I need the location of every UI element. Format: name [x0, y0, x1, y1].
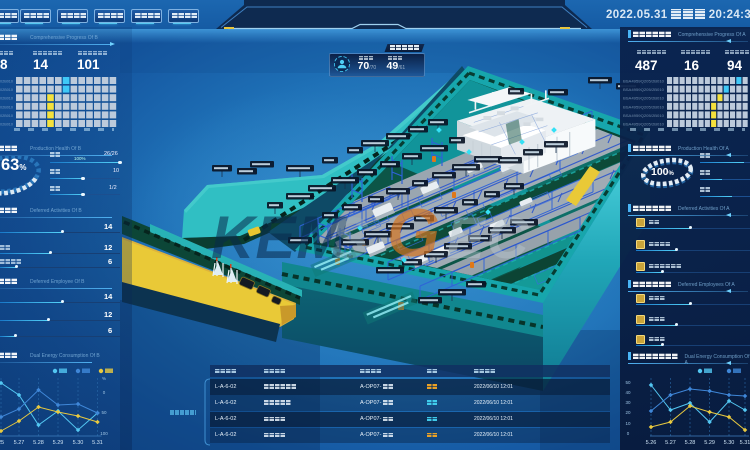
- svg-text:5.28: 5.28: [685, 440, 696, 446]
- svg-text:BSA4959Q205/2B010: BSA4959Q205/2B010: [623, 122, 664, 126]
- svg-text:EC: EC: [446, 206, 531, 271]
- svg-text:5.31: 5.31: [92, 440, 103, 446]
- svg-text:G: G: [387, 195, 440, 271]
- svg-text:BSA4959Q205/2B010: BSA4959Q205/2B010: [623, 105, 664, 109]
- svg-text:5.27: 5.27: [14, 440, 25, 446]
- svg-text:5.29: 5.29: [704, 440, 715, 446]
- svg-text:100: 100: [100, 431, 108, 436]
- svg-text:25: 25: [0, 440, 4, 446]
- svg-text:10: 10: [625, 421, 631, 426]
- svg-text:50: 50: [625, 380, 631, 385]
- svg-text:KEM: KEM: [211, 204, 348, 271]
- svg-text:0: 0: [627, 431, 630, 436]
- svg-text:02B010: 02B010: [0, 122, 13, 126]
- svg-text:5.26: 5.26: [646, 440, 657, 446]
- svg-text:02B010: 02B010: [0, 105, 13, 109]
- svg-text:0: 0: [103, 390, 106, 395]
- svg-text:5.29: 5.29: [53, 440, 64, 446]
- svg-text:02B010: 02B010: [0, 114, 13, 118]
- svg-text:02B010: 02B010: [0, 80, 13, 84]
- svg-text:5.30: 5.30: [724, 440, 735, 446]
- svg-text:BSA4959Q205/2B010: BSA4959Q205/2B010: [623, 88, 664, 92]
- svg-text:02B010: 02B010: [0, 88, 13, 92]
- svg-text:02B010: 02B010: [0, 97, 13, 101]
- svg-text:S: S: [330, 206, 369, 271]
- svg-text:5.30: 5.30: [73, 440, 84, 446]
- svg-text:%: %: [102, 376, 106, 381]
- svg-text:BSA4959Q205/2B010: BSA4959Q205/2B010: [623, 80, 664, 84]
- svg-text:5.31: 5.31: [740, 440, 750, 446]
- svg-text:5.27: 5.27: [665, 440, 676, 446]
- svg-text:50: 50: [101, 410, 107, 415]
- svg-text:30: 30: [625, 400, 631, 405]
- svg-text:BSA4959Q205/2B010: BSA4959Q205/2B010: [623, 97, 664, 101]
- svg-text:40: 40: [625, 390, 631, 395]
- svg-text:BSA4959Q205/2B010: BSA4959Q205/2B010: [623, 114, 664, 118]
- svg-text:5.28: 5.28: [33, 440, 44, 446]
- svg-text:20: 20: [625, 410, 631, 415]
